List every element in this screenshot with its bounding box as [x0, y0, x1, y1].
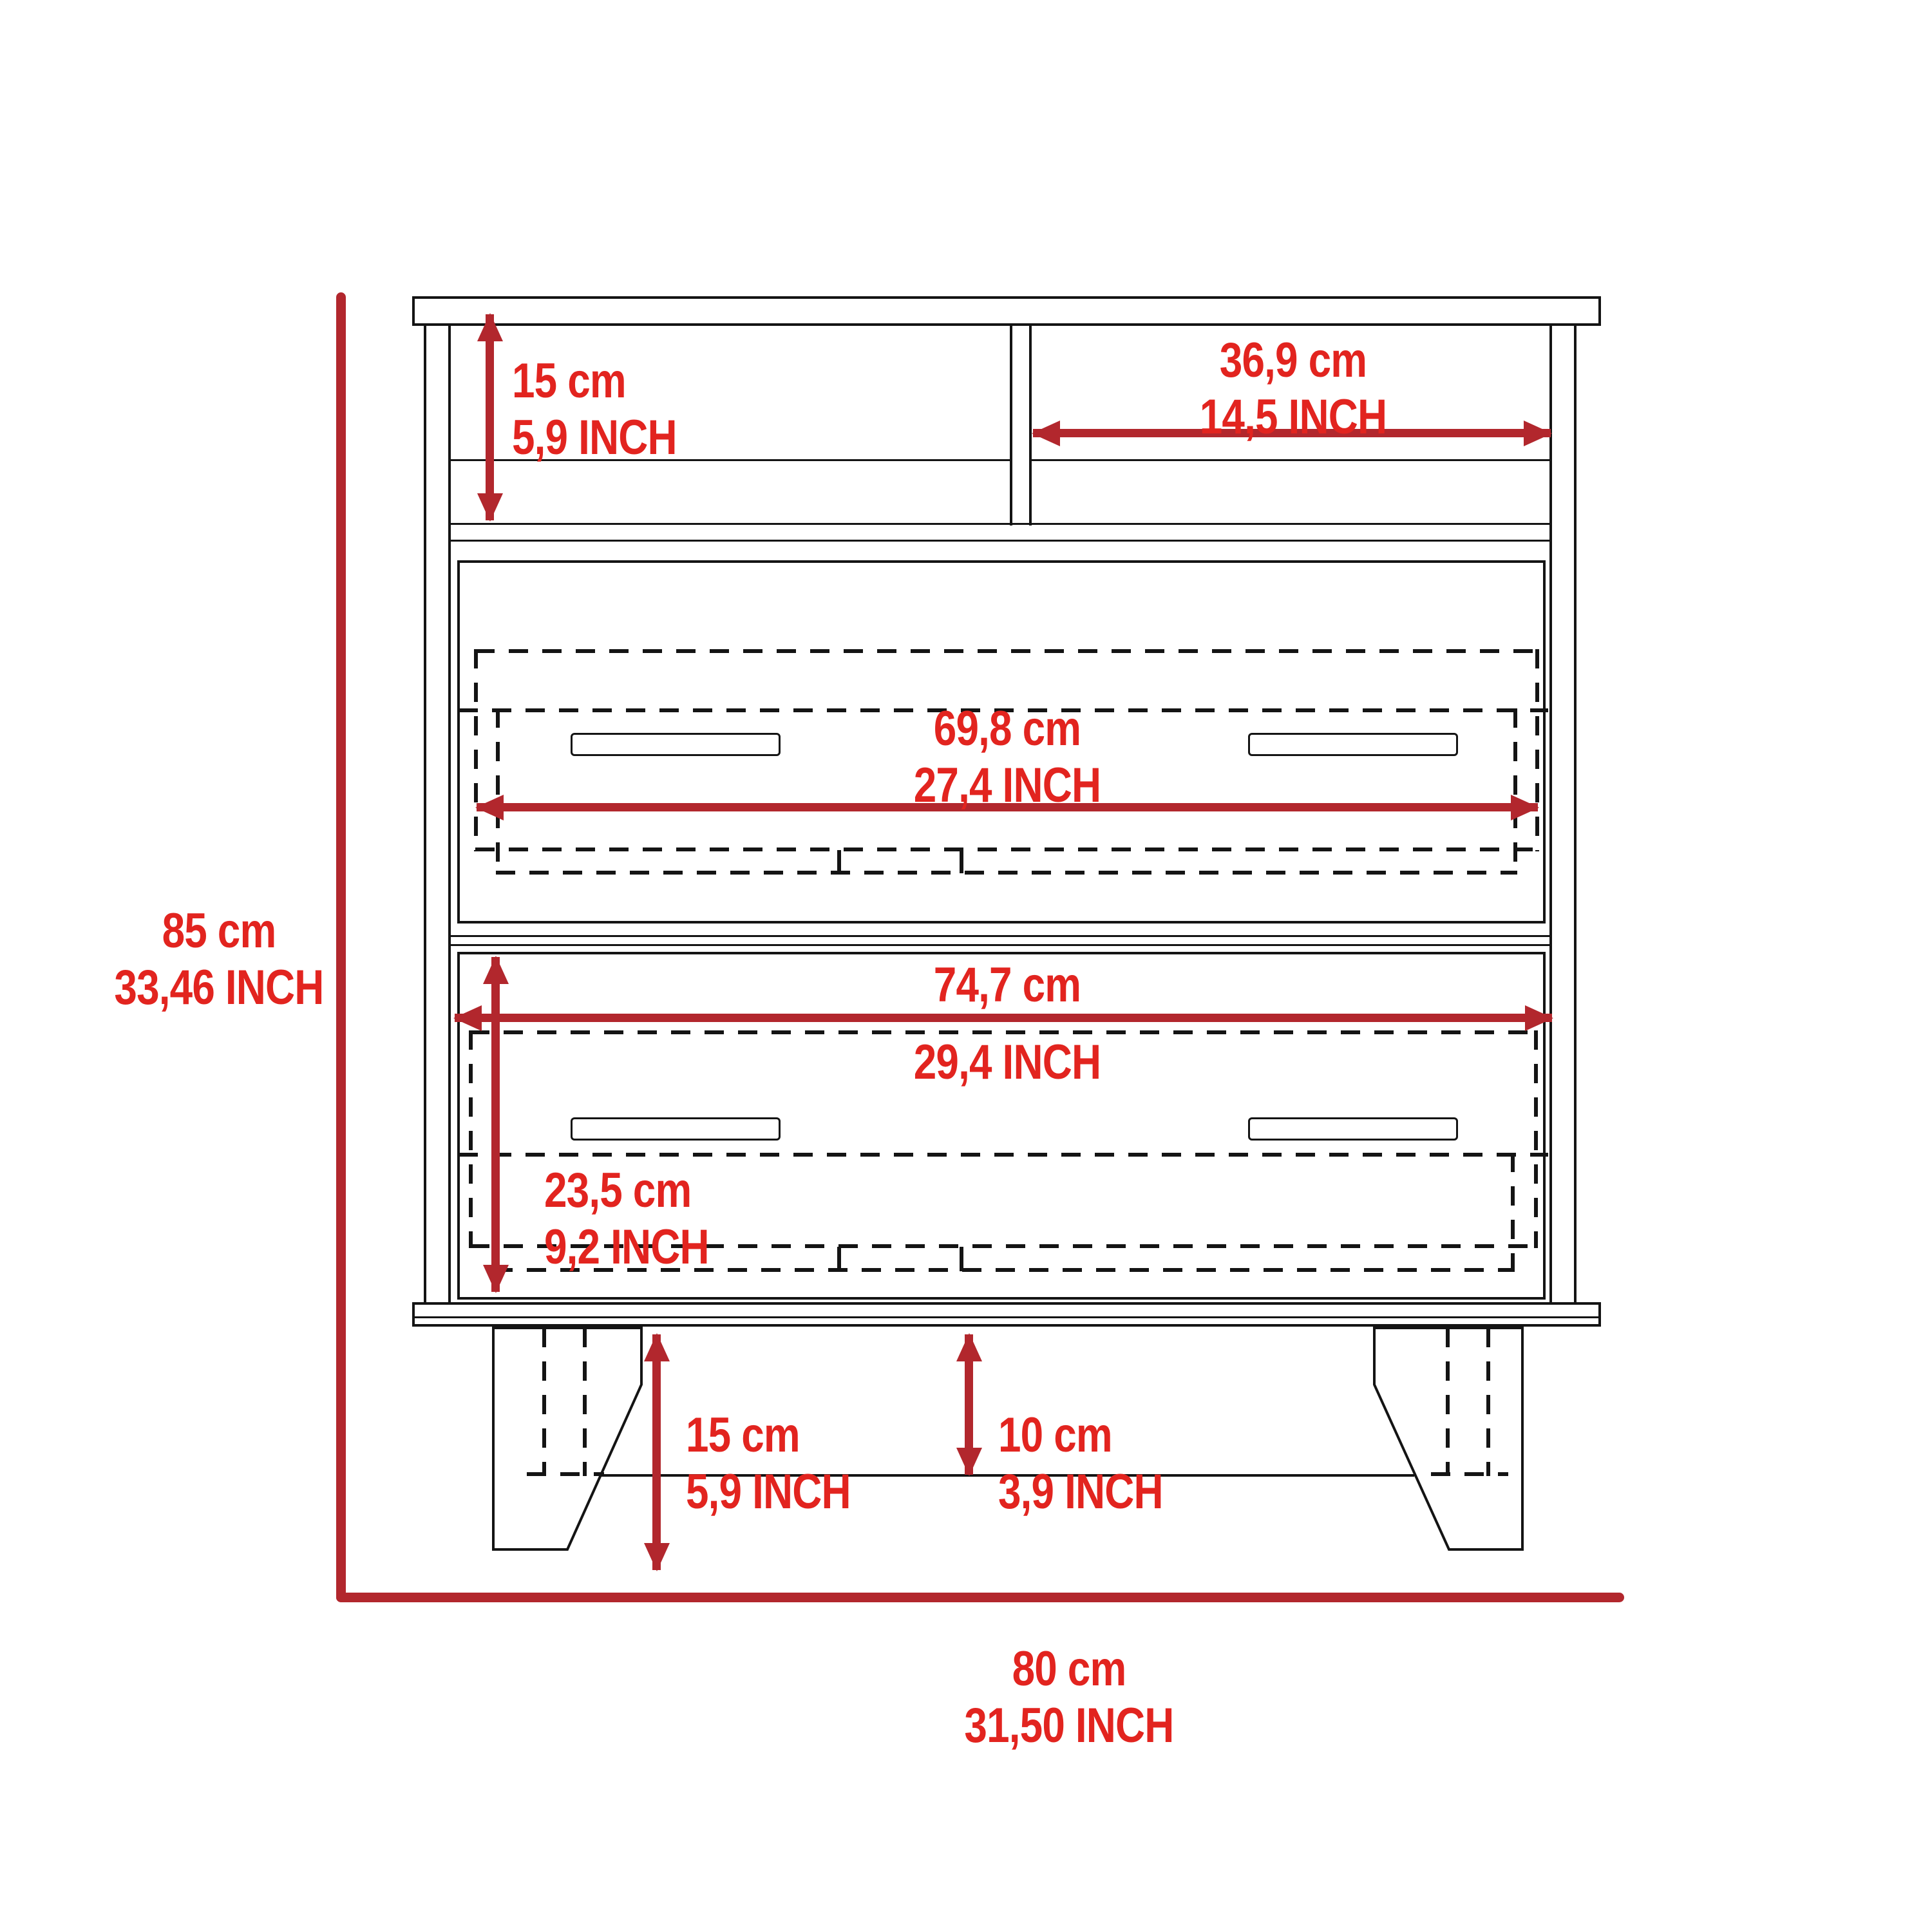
dim-label-overall-height-cm: 85 cm: [114, 903, 323, 960]
shelf-floor-top-line: [451, 523, 1551, 525]
dim-label-shelf-height-inch: 5,9 INCH: [512, 410, 677, 466]
left-leg-hidden-line-1: [542, 1328, 546, 1476]
dim-arrow-drawer-bottom-height: [491, 957, 500, 1292]
right-leg-hidden-foot: [1431, 1472, 1508, 1476]
side-panel-right-outer: [1574, 326, 1577, 1302]
dim-label-drawer-top-width-cm: 69,8 cm: [914, 701, 1101, 757]
dim-label-floor-clearance-inch: 3,9 INCH: [998, 1464, 1163, 1520]
left-leg-hidden-foot: [527, 1472, 604, 1476]
drawer-1-dashed-box-left: [474, 649, 478, 851]
drawer-2-dash-notch-2: [960, 1247, 963, 1271]
overall-width-line: [336, 1593, 1624, 1602]
left-leg-hidden-line-2: [583, 1328, 587, 1476]
dim-label-drawer-bottom-height-cm: 23,5 cm: [544, 1162, 709, 1219]
shelf-line-right: [1030, 459, 1551, 461]
drawer-2-dashed-box-left: [469, 1030, 473, 1248]
dim-arrow-drawer-bottom-width: [455, 1014, 1552, 1022]
drawer-1-dashed-inner-bottom: [496, 871, 1517, 875]
drawer-1-dashed-inner-left: [496, 708, 500, 875]
dim-label-leg-height: 15 cm 5,9 INCH: [686, 1407, 882, 1520]
side-panel-left-inner: [448, 326, 451, 1302]
top-board: [412, 296, 1601, 326]
shelf-divider-left-line: [1010, 326, 1012, 526]
right-leg-hidden-line-2: [1486, 1328, 1490, 1476]
drawer-1-dash-notch-2: [960, 850, 963, 873]
dim-label-overall-width: 80 cm 31,50 INCH: [944, 1641, 1193, 1754]
drawer-2-dash-notch-1: [837, 1247, 841, 1271]
dim-arrow-shelf-height: [486, 314, 494, 520]
right-leg-hidden-line-1: [1446, 1328, 1450, 1476]
drawer-1-handle-left: [571, 733, 781, 756]
dim-label-overall-height-inch: 33,46 INCH: [114, 960, 323, 1016]
side-panel-right-inner: [1549, 326, 1552, 1302]
dim-label-drawer-bottom-height: 23,5 cm 9,2 INCH: [544, 1162, 741, 1276]
left-leg: [493, 1328, 641, 1549]
drawer-divider-line-2: [451, 944, 1551, 946]
dim-label-shelf-width: 36,9 cm 14,5 INCH: [1182, 332, 1405, 446]
drawer-2-handle-right: [1248, 1117, 1458, 1141]
dim-label-overall-height: 85 cm 33,46 INCH: [94, 903, 343, 1016]
dim-label-drawer-bottom-width-cm: 74,7 cm: [920, 957, 1095, 1014]
dim-arrow-floor-clearance: [965, 1334, 973, 1475]
bottom-board-inner-line: [415, 1316, 1598, 1318]
shelf-floor-bottom-line: [451, 540, 1551, 542]
drawer-1-dashed-box-top: [475, 649, 1539, 653]
dimension-diagram: 15 cm 5,9 INCH 36,9 cm 14,5 INCH 69,8 cm…: [0, 0, 1932, 1932]
drawer-divider-line-1: [451, 935, 1551, 937]
dim-label-overall-width-cm: 80 cm: [964, 1641, 1173, 1698]
dim-label-drawer-top-width: 69,8 cm 27,4 INCH: [896, 701, 1119, 814]
side-panel-left-outer: [424, 326, 426, 1302]
dim-arrow-leg-height: [652, 1334, 661, 1570]
dim-label-leg-height-inch: 5,9 INCH: [686, 1464, 851, 1520]
drawer-1-dashed-box-bottom: [475, 848, 1539, 851]
drawer-1-dashed-box-right: [1535, 649, 1539, 851]
drawer-2-dashed-box-right: [1534, 1030, 1538, 1248]
drawer-1-handle-right: [1248, 733, 1458, 756]
dim-label-shelf-width-cm: 36,9 cm: [1200, 332, 1387, 389]
drawer-2-handle-left: [571, 1117, 781, 1141]
dim-label-overall-width-inch: 31,50 INCH: [964, 1698, 1173, 1754]
dim-label-shelf-height-cm: 15 cm: [512, 353, 677, 410]
bottom-board: [412, 1302, 1601, 1327]
drawer-2-dashed-mid-line: [459, 1153, 1548, 1157]
drawer-1-dash-notch-1: [837, 850, 841, 873]
dim-label-shelf-height: 15 cm 5,9 INCH: [512, 353, 708, 466]
drawer-1-dashed-inner-right: [1513, 708, 1517, 875]
dim-label-shelf-width-inch: 14,5 INCH: [1200, 389, 1387, 446]
drawer-2-dashed-inner-right: [1511, 1153, 1515, 1272]
dim-label-drawer-top-width-inch: 27,4 INCH: [914, 757, 1101, 814]
dim-label-drawer-bottom-width-inch: 29,4 INCH: [896, 1034, 1119, 1091]
dim-label-floor-clearance: 10 cm 3,9 INCH: [998, 1407, 1195, 1520]
dim-label-leg-height-cm: 15 cm: [686, 1407, 851, 1464]
dim-label-floor-clearance-cm: 10 cm: [998, 1407, 1163, 1464]
dim-label-drawer-bottom-height-inch: 9,2 INCH: [544, 1219, 709, 1276]
